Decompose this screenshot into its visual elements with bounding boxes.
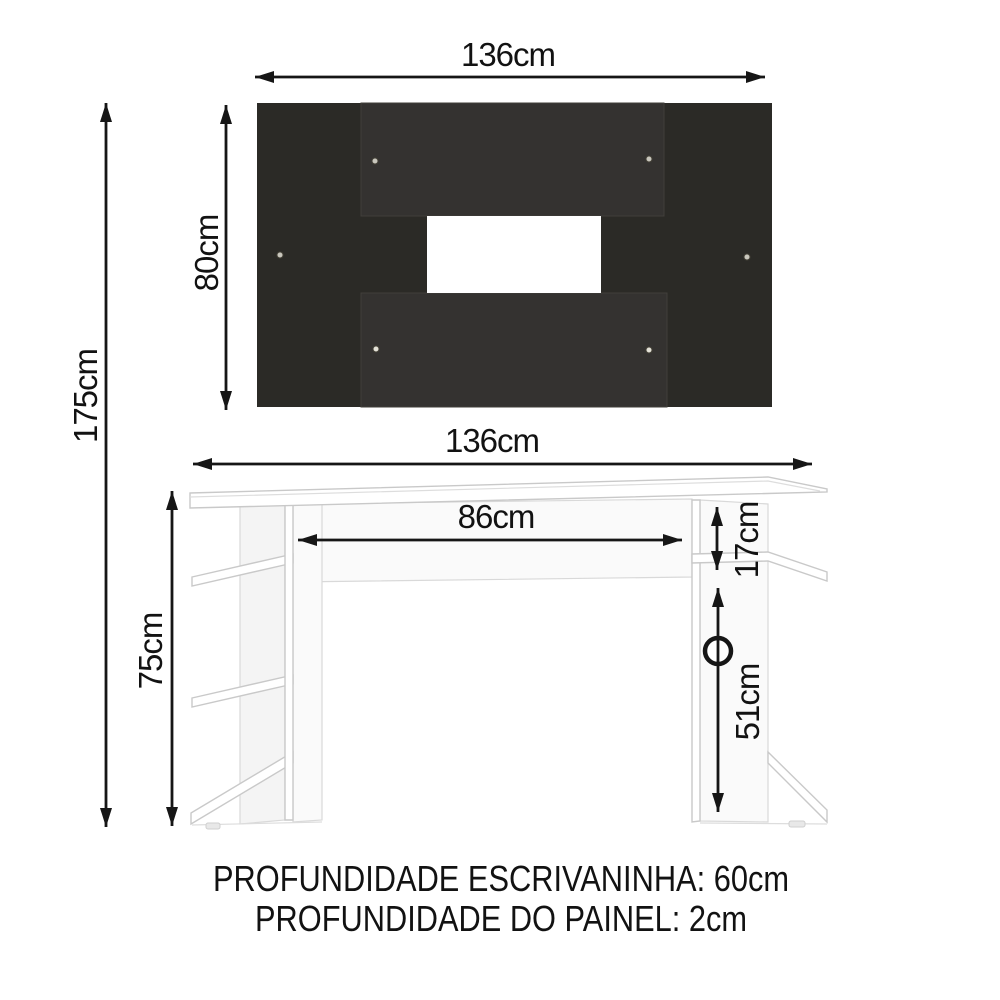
dim-desk-width-label: 136cm — [445, 422, 539, 459]
dim-desk-width: 136cm — [193, 422, 812, 464]
dim-panel-width-label: 136cm — [461, 36, 555, 73]
footer-notes: PROFUNDIDADE ESCRIVANINHA: 60cm PROFUNDI… — [213, 858, 789, 939]
diagram-page: 136cm 80cm 175cm 136cm 86cm 75cm 17cm — [0, 0, 1000, 1000]
footer-note-desk-depth: PROFUNDIDADE ESCRIVANINHA: 60cm — [213, 858, 789, 899]
furniture-dimension-diagram: 136cm 80cm 175cm 136cm 86cm 75cm 17cm — [0, 0, 1000, 1000]
panel-top-center-board — [361, 103, 664, 216]
dim-panel-height: 80cm — [188, 105, 226, 410]
dim-panel-height-label: 80cm — [188, 215, 225, 292]
dim-desk-height-label: 75cm — [132, 613, 169, 690]
panel-cutout — [427, 216, 601, 293]
desk-foot — [789, 821, 805, 827]
tv-panel — [257, 103, 772, 407]
panel-bottom-center-board — [361, 293, 667, 407]
screw-hole — [373, 346, 379, 352]
screw-hole — [646, 156, 652, 162]
left-upright-inner-face — [293, 502, 322, 822]
screw-hole — [372, 158, 378, 164]
dim-side-opening-label: 51cm — [729, 664, 766, 741]
dim-total-height: 175cm — [67, 103, 106, 827]
dim-shelf-gap-label: 17cm — [728, 502, 765, 579]
left-upright-front-edge — [285, 504, 293, 820]
right-upright-front-edge — [692, 500, 700, 822]
dim-panel-width: 136cm — [255, 36, 765, 77]
right-base-board — [768, 752, 827, 822]
screw-hole — [744, 254, 750, 260]
screw-hole — [277, 252, 283, 258]
dim-desk-height: 75cm — [132, 491, 172, 826]
footer-note-panel-depth: PROFUNDIDADE DO PAINEL: 2cm — [255, 898, 747, 939]
screw-hole — [646, 347, 652, 353]
dim-desk-inner-width-label: 86cm — [458, 498, 535, 535]
desk-foot — [206, 823, 220, 829]
right-floor-line — [700, 823, 827, 824]
dim-total-height-label: 175cm — [67, 349, 104, 443]
